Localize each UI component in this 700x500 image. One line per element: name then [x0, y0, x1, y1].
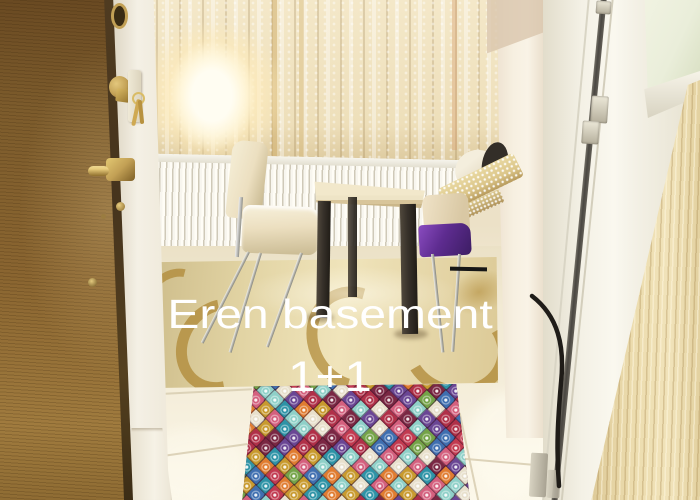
wooden-entry-door: [0, 0, 124, 500]
brass-knob: [116, 202, 125, 211]
dash-annotation: [450, 267, 487, 272]
keyhole-escutcheon: [111, 3, 128, 29]
photo-caption: Eren basement 1+1: [130, 285, 530, 409]
apartment-photo: Eren basement 1+1: [0, 0, 700, 500]
caption-line-2: 1+1: [100, 346, 560, 408]
purple-stool-seat: [418, 223, 472, 258]
door-hinge: [596, 0, 612, 14]
table-leg: [348, 197, 357, 297]
screw-head: [101, 214, 106, 219]
cream-chair-seat: [241, 205, 320, 256]
lamp-light-core: [168, 40, 256, 152]
door-handle: [88, 166, 109, 176]
door-hinge: [581, 120, 600, 144]
curtain-pink-streak: [452, 0, 457, 150]
mortise-lock: [106, 158, 135, 181]
caption-line-1: Eren basement: [96, 285, 564, 344]
door-hinge: [590, 95, 609, 123]
